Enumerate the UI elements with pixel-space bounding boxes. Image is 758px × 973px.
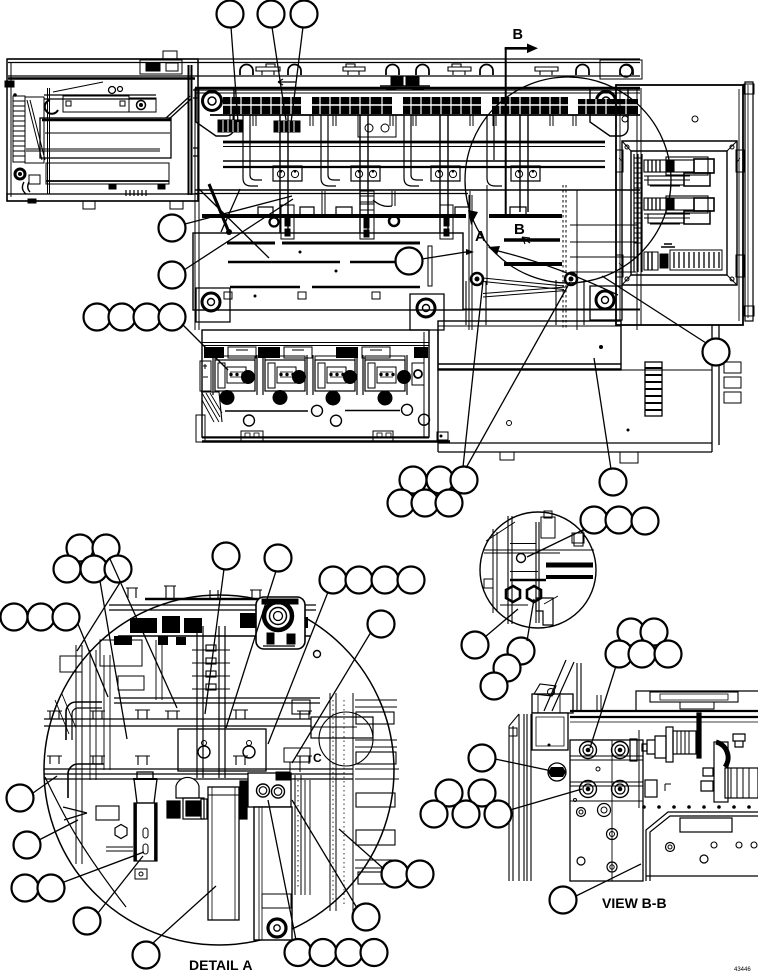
svg-text:DETAIL A: DETAIL A [189, 957, 253, 973]
svg-text:B: B [514, 221, 525, 238]
svg-text:VIEW B-B: VIEW B-B [602, 895, 667, 911]
svg-text:B: B [513, 27, 523, 43]
svg-text:43446: 43446 [734, 967, 751, 973]
svg-text:A: A [475, 228, 486, 245]
svg-text:C: C [313, 751, 322, 765]
